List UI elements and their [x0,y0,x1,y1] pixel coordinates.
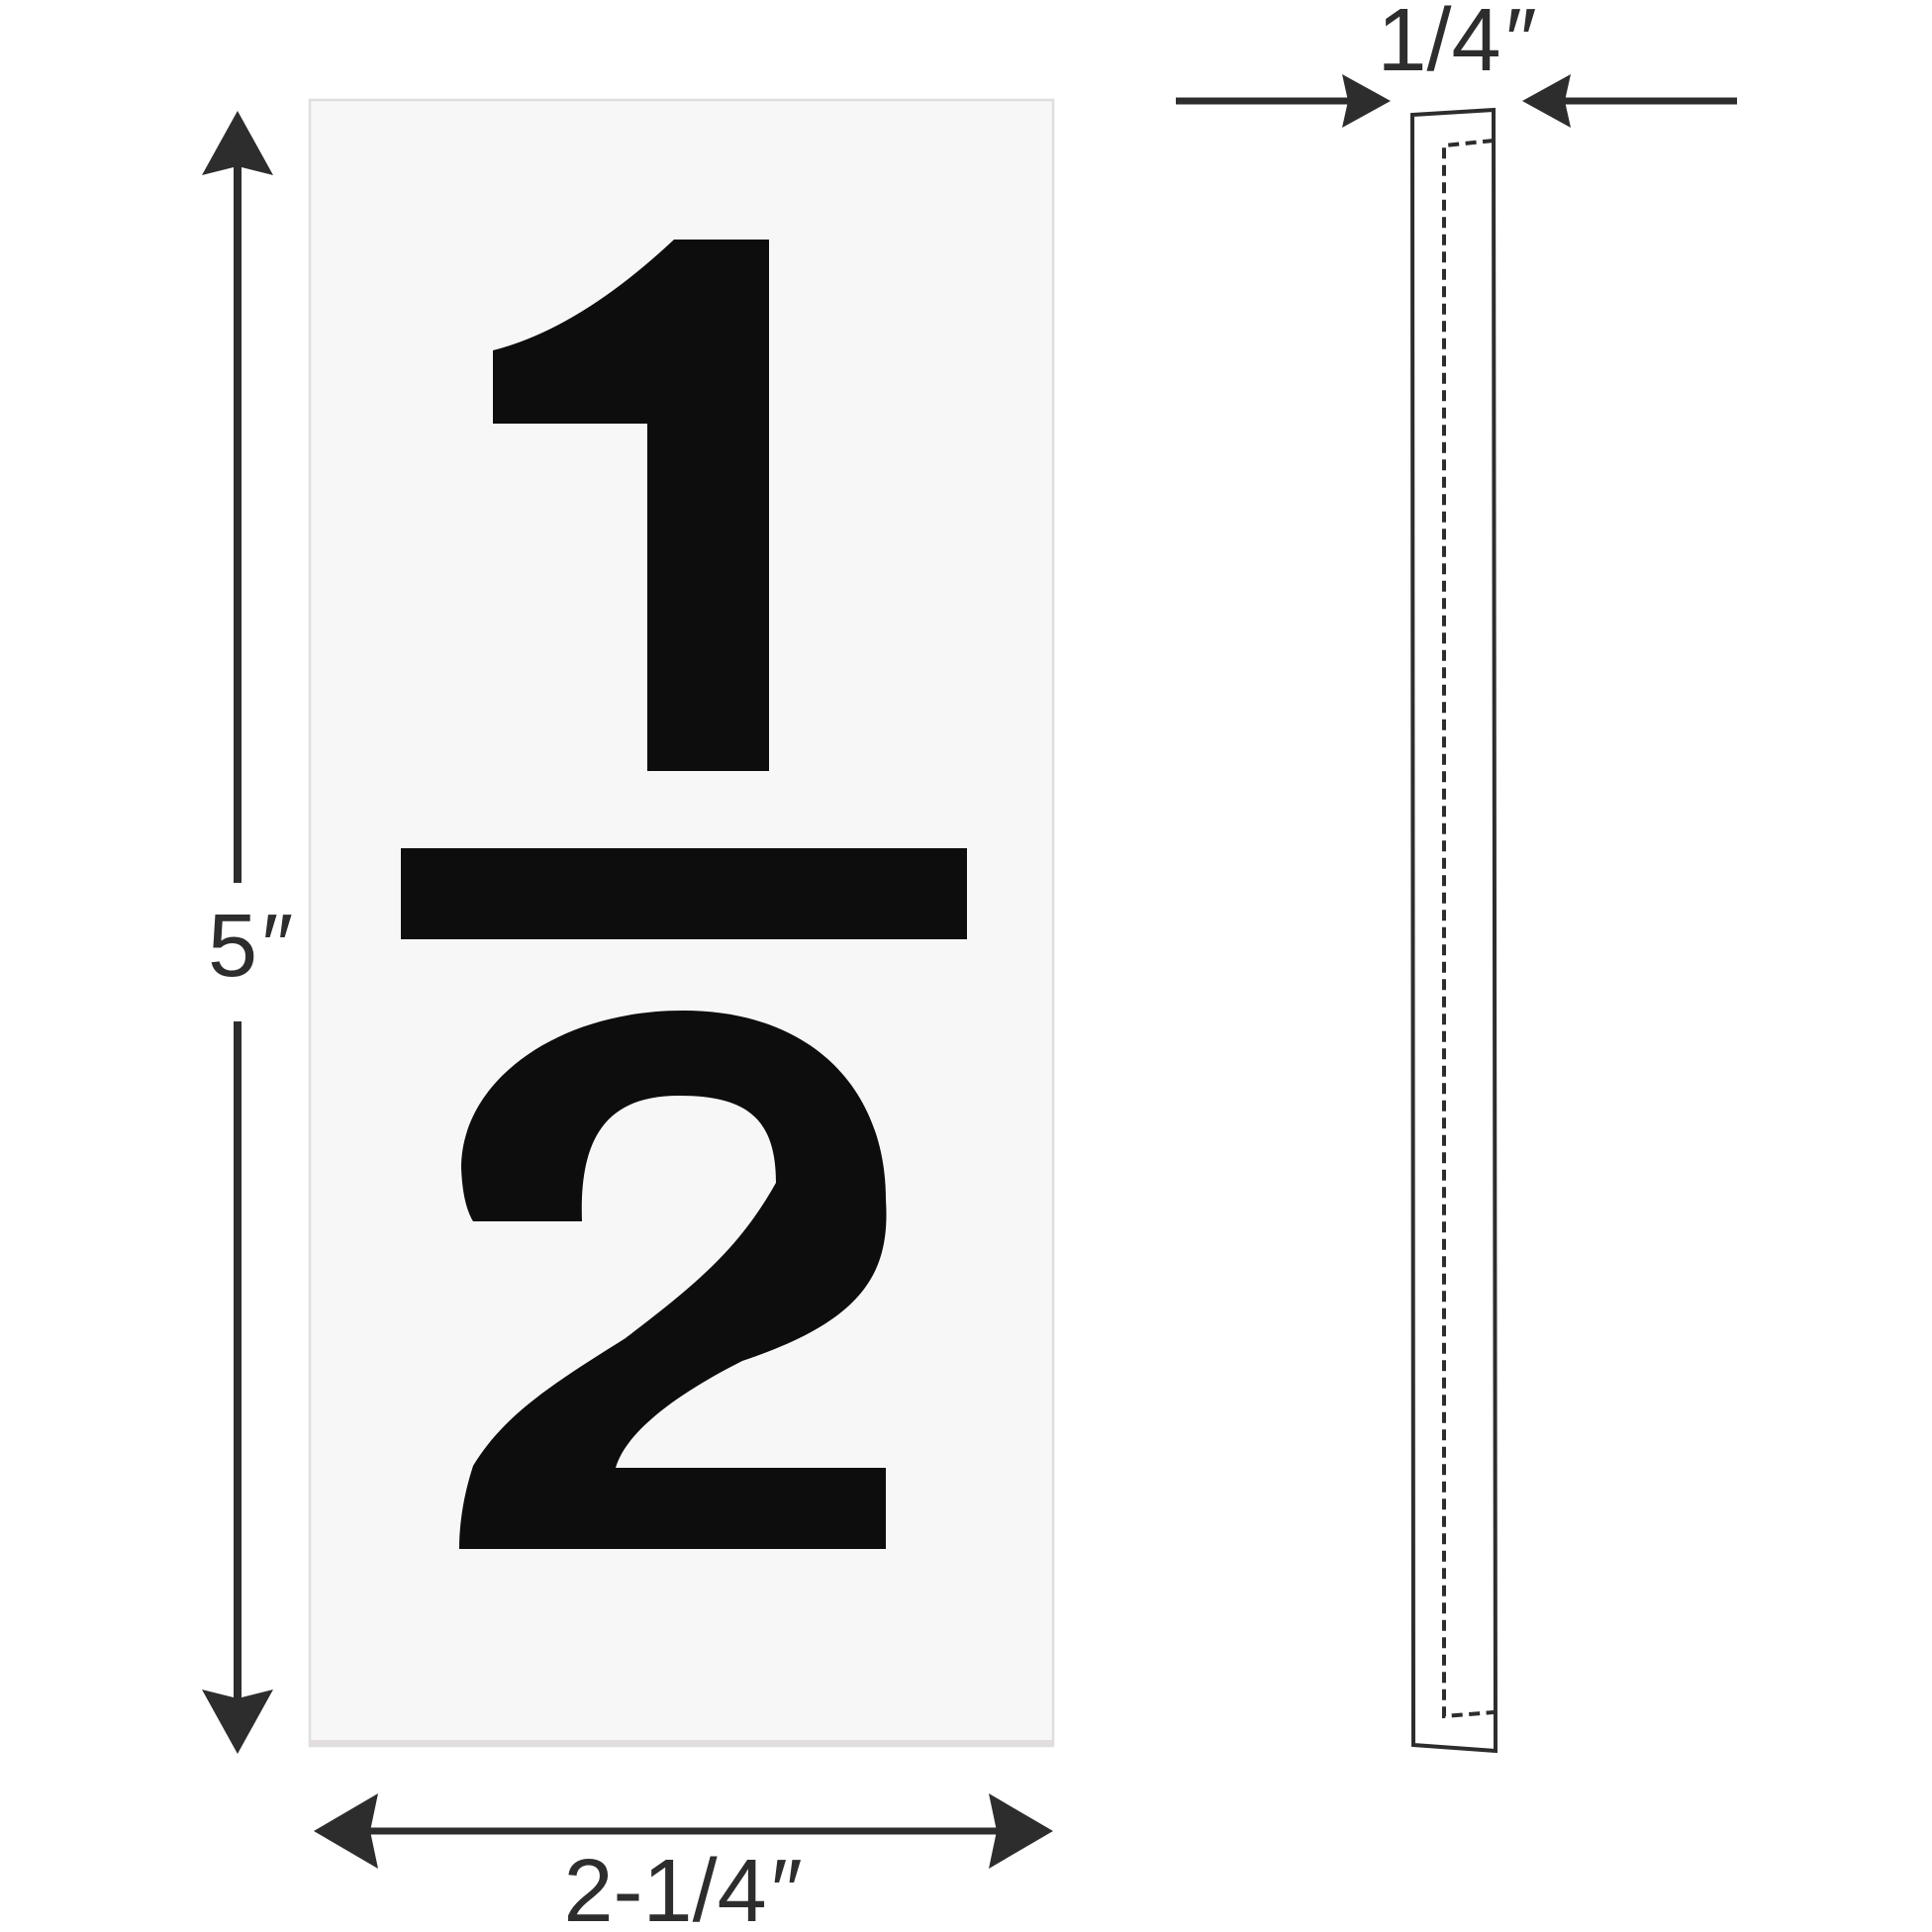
svg-text:1/4″: 1/4″ [1378,0,1536,90]
svg-text:2-1/4″: 2-1/4″ [563,1842,801,1932]
svg-text:5″: 5″ [208,897,292,996]
